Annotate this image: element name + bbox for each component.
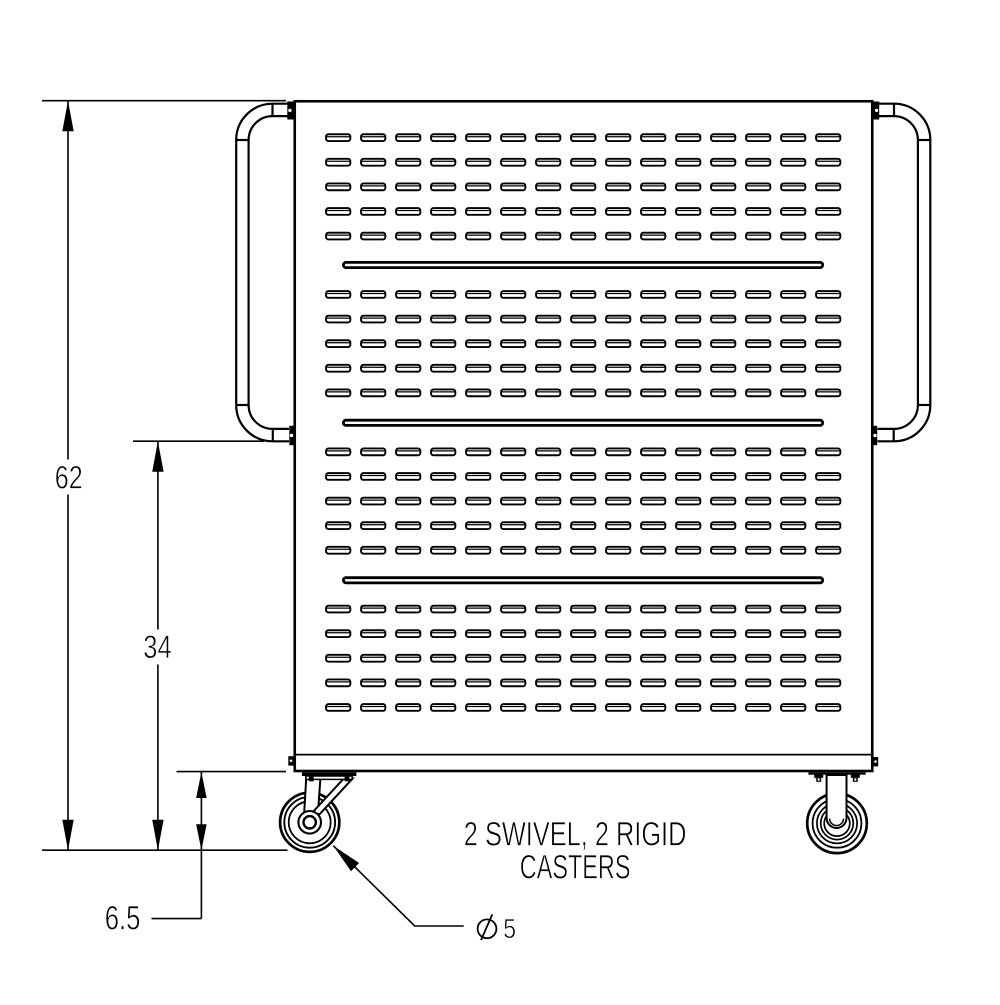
svg-text:62: 62 [55, 459, 83, 495]
svg-text:5: 5 [503, 913, 516, 944]
svg-text:34: 34 [143, 629, 172, 665]
svg-text:2 SWIVEL, 2 RIGID: 2 SWIVEL, 2 RIGID [464, 815, 687, 853]
svg-text:6.5: 6.5 [105, 899, 141, 937]
svg-text:CASTERS: CASTERS [520, 849, 631, 887]
